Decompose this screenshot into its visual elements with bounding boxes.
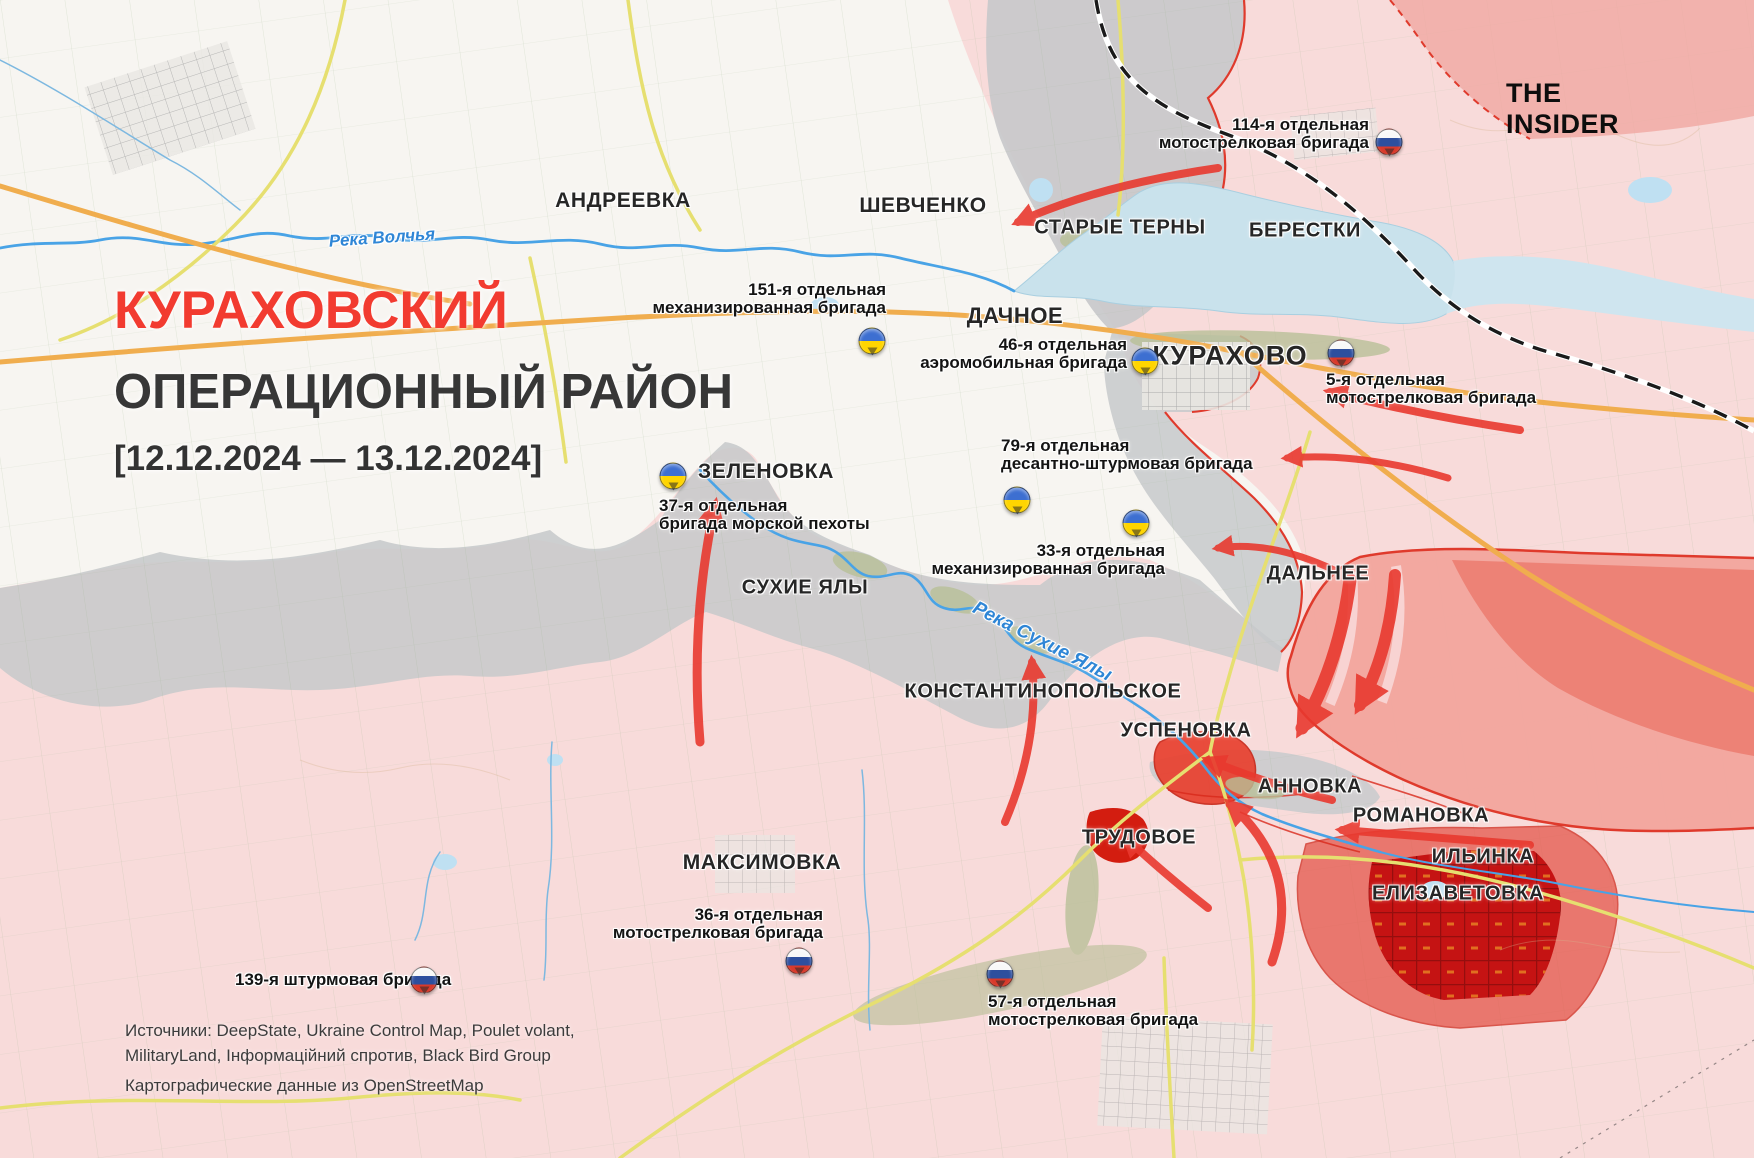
unit-flag-pin-33rd — [1123, 510, 1150, 537]
town-uspenovka: УСПЕНОВКА — [1120, 720, 1251, 743]
town-dalnee: ДАЛЬНЕЕ — [1267, 563, 1370, 586]
town-starye-terny: СТАРЫЕ ТЕРНЫ — [1034, 217, 1205, 240]
unit-flag-pin-37th — [660, 463, 687, 490]
town-kurakhovo: КУРАХОВО — [1152, 341, 1307, 372]
town-zelenovka: ЗЕЛЕНОВКА — [698, 460, 834, 484]
unit-flag-pin-79th — [1004, 487, 1031, 514]
unit-label-79th: 79-я отдельнаядесантно-штурмовая бригада — [1001, 437, 1253, 473]
town-berestki: БЕРЕСТКИ — [1249, 220, 1361, 243]
unit-label-151st: 151-я отдельнаямеханизированная бригада — [652, 281, 886, 317]
town-konstantinopolskoe: КОНСТАНТИНОПОЛЬСКОЕ — [905, 681, 1182, 704]
unit-label-5th: 5-я отдельнаямотострелковая бригада — [1326, 371, 1536, 407]
unit-flag-pin-5th — [1328, 340, 1355, 367]
unit-flag-pin-57th — [987, 961, 1014, 988]
unit-label-114th: 114-я отдельнаямотострелковая бригада — [1159, 116, 1369, 152]
unit-label-36th: 36-я отдельнаямотострелковая бригада — [613, 906, 823, 942]
unit-flag-pin-139th — [411, 967, 438, 994]
sources-line-1: Источники: DeepState, Ukraine Control Ma… — [125, 1018, 575, 1043]
title-line-2: ОПЕРАЦИОННЫЙ РАЙОН — [114, 368, 733, 417]
unit-label-57th: 57-я отдельнаямотострелковая бригада — [988, 993, 1198, 1029]
map-title: КУРАХОВСКИЙ ОПЕРАЦИОННЫЙ РАЙОН [12.12.20… — [114, 284, 733, 479]
town-trudovoe: ТРУДОВОЕ — [1082, 827, 1196, 850]
unit-label-46th: 46-я отдельнаяаэромобильная бригада — [920, 336, 1127, 372]
town-maksimovka: МАКСИМОВКА — [683, 851, 841, 875]
sources-line-3: Картографические данные из OpenStreetMap — [125, 1073, 575, 1098]
town-annovka: АННОВКА — [1258, 776, 1362, 799]
unit-label-33rd: 33-я отдельнаямеханизированная бригада — [931, 542, 1165, 578]
unit-flag-pin-151st — [859, 328, 886, 355]
town-dachnoe: ДАЧНОЕ — [967, 303, 1064, 329]
sources-line-2: MilitaryLand, Інформаційний спротив, Bla… — [125, 1043, 575, 1068]
unit-flag-pin-36th — [786, 948, 813, 975]
the-insider-logo: THE INSIDER — [1506, 78, 1630, 140]
town-shevchenko: ШЕВЧЕНКО — [859, 194, 986, 218]
town-sukhie-yaly: СУХИЕ ЯЛЫ — [742, 577, 869, 600]
town-romanovka: РОМАНОВКА — [1353, 805, 1489, 828]
kurakhove-situation-map: КУРАХОВСКИЙ ОПЕРАЦИОННЫЙ РАЙОН [12.12.20… — [0, 0, 1754, 1158]
unit-flag-pin-114th — [1376, 129, 1403, 156]
town-andreevka: АНДРЕЕВКА — [555, 189, 691, 213]
unit-label-37th: 37-я отдельнаябригада морской пехоты — [659, 497, 870, 533]
title-date-range: [12.12.2024 — 13.12.2024] — [114, 439, 733, 479]
unit-flag-pin-46th — [1132, 348, 1159, 375]
title-line-1: КУРАХОВСКИЙ — [114, 284, 733, 337]
map-sources: Источники: DeepState, Ukraine Control Ma… — [125, 1018, 575, 1098]
town-ilinka: ИЛЬИНКА — [1432, 846, 1534, 869]
town-elizavetovka: ЕЛИЗАВЕТОВКА — [1372, 883, 1544, 906]
